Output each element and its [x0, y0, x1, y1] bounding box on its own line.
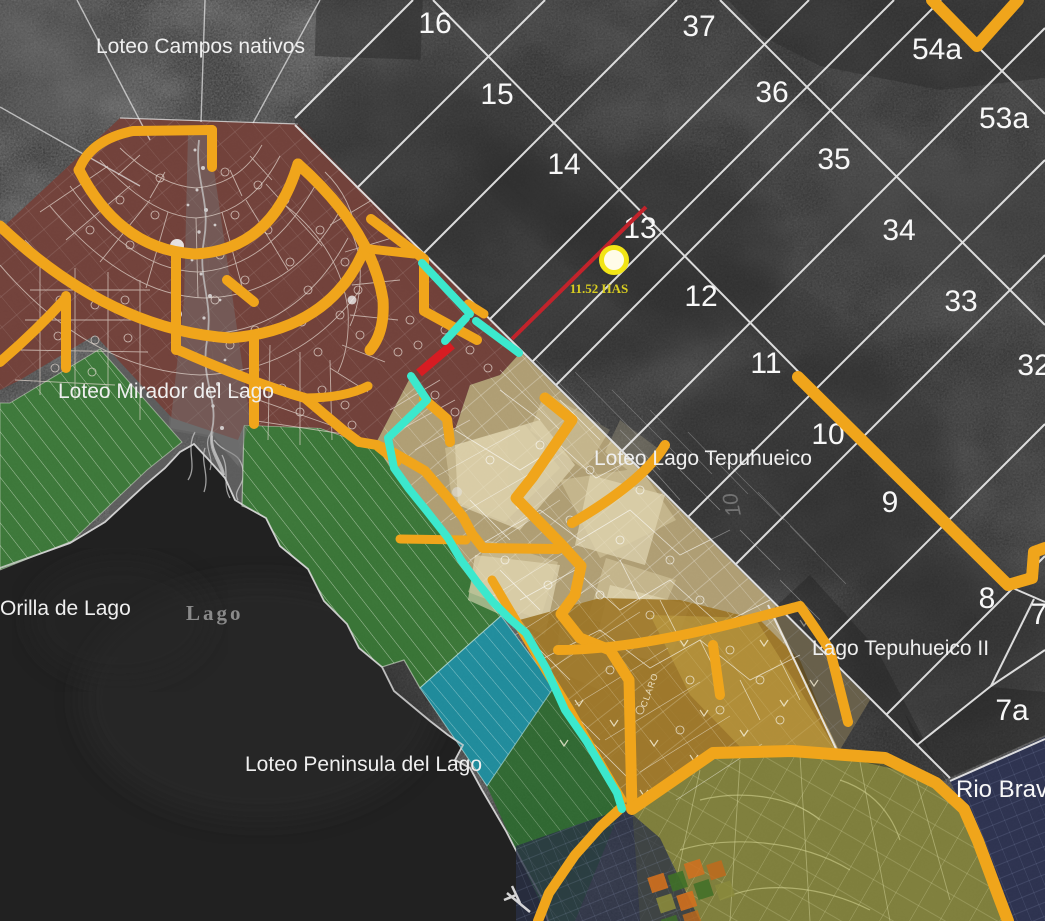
- svg-text:11: 11: [750, 347, 781, 380]
- svg-text:Rio Bravo: Rio Bravo: [956, 776, 1045, 803]
- svg-text:Lago: Lago: [186, 601, 244, 625]
- svg-text:37: 37: [682, 10, 715, 43]
- svg-text:12: 12: [684, 280, 717, 313]
- svg-text:9: 9: [882, 486, 899, 519]
- svg-text:13: 13: [623, 212, 656, 245]
- svg-text:54a: 54a: [912, 33, 962, 66]
- svg-text:33: 33: [944, 285, 977, 318]
- svg-text:53a: 53a: [979, 102, 1029, 135]
- svg-text:36: 36: [755, 76, 788, 109]
- svg-text:16: 16: [418, 7, 451, 40]
- svg-text:11.52 HAS: 11.52 HAS: [570, 281, 629, 296]
- svg-text:15: 15: [480, 78, 513, 111]
- svg-text:Orilla de Lago: Orilla de Lago: [0, 597, 131, 620]
- svg-text:34: 34: [882, 214, 915, 247]
- svg-text:32: 32: [1017, 349, 1045, 382]
- svg-text:7a: 7a: [995, 694, 1029, 727]
- svg-text:14: 14: [547, 148, 580, 181]
- svg-text:Loteo Mirador del Lago: Loteo Mirador del Lago: [58, 380, 274, 403]
- svg-text:7: 7: [1031, 598, 1045, 631]
- svg-text:Loteo Peninsula del Lago: Loteo Peninsula del Lago: [245, 753, 482, 776]
- svg-text:Loteo Lago Tepuhueico: Loteo Lago Tepuhueico: [594, 447, 812, 470]
- svg-text:8: 8: [979, 582, 996, 615]
- svg-text:35: 35: [817, 143, 850, 176]
- svg-text:Loteo Campos nativos: Loteo Campos nativos: [96, 35, 305, 58]
- svg-text:Lago Tepuhueico II: Lago Tepuhueico II: [812, 637, 989, 660]
